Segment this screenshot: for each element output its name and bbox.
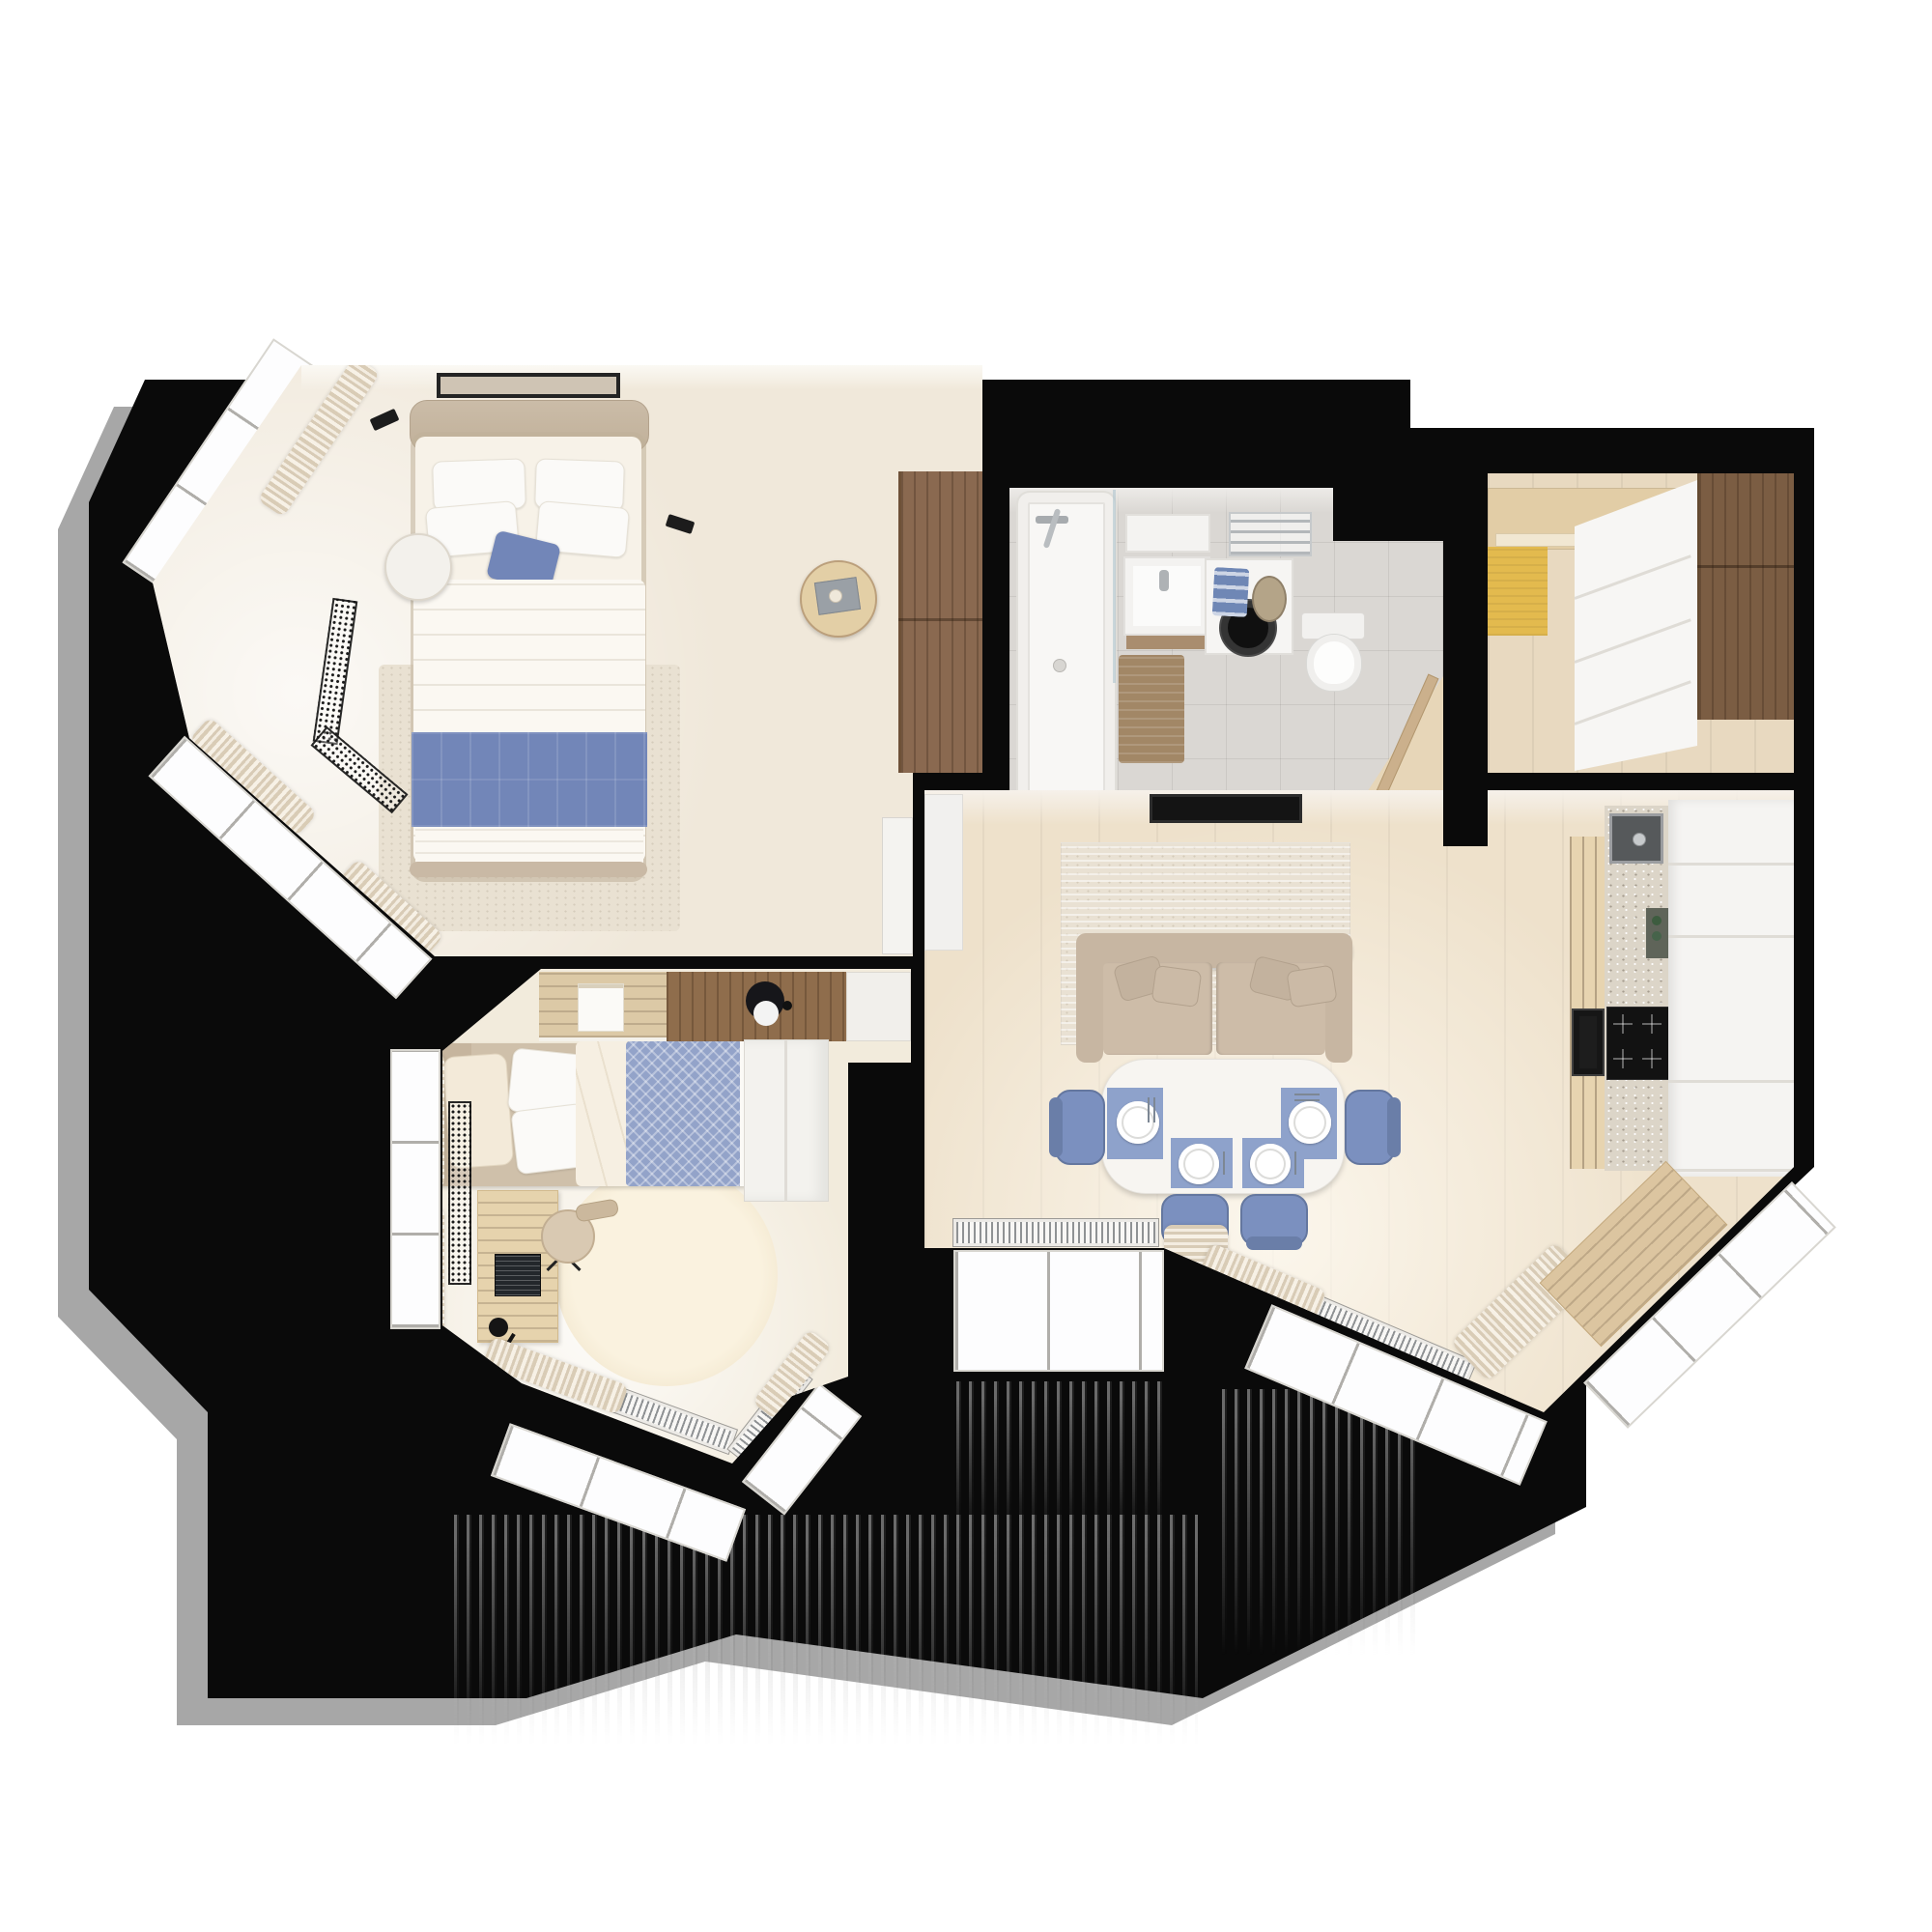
- kitchen-base-cabinets: [1570, 837, 1605, 1169]
- living-radiator-left: [953, 1219, 1158, 1246]
- plate: [1289, 1101, 1331, 1144]
- cutlery-icon: [1294, 1151, 1296, 1175]
- bedroom-wall-highlight: [301, 365, 982, 390]
- cabinet-seam: [1697, 565, 1794, 568]
- cutlery-icon: [1223, 1151, 1225, 1175]
- plate: [1250, 1144, 1291, 1184]
- burner-icon: [1640, 1012, 1663, 1036]
- curtain-reflection-stripes: [956, 1381, 1164, 1546]
- cutlery-icon: [1148, 1097, 1150, 1122]
- floor-plan-stage: [0, 0, 1932, 1932]
- curtain-reflection-stripes: [454, 1515, 1198, 1756]
- panda-plush-face-icon: [753, 1001, 779, 1026]
- bathtub-drain: [1053, 659, 1066, 672]
- vanity-sink: [1123, 556, 1210, 636]
- dining-chair-bottom-backrest: [1246, 1236, 1302, 1250]
- burner-icon: [1611, 1012, 1634, 1036]
- tv-panel: [1150, 794, 1302, 823]
- desk-lamp-icon: [489, 1318, 508, 1337]
- cabinet-seam: [1668, 935, 1794, 938]
- bedroom-door-leaf: [882, 817, 913, 954]
- nightstand-left: [384, 533, 452, 601]
- blue-towels: [1212, 567, 1250, 617]
- bed-footboard: [410, 862, 647, 877]
- yellow-doormat: [1488, 547, 1548, 636]
- towel-rail: [1229, 512, 1312, 556]
- bathroom-mirror-shelf: [1125, 514, 1210, 553]
- kids-radiator-left: [448, 1101, 471, 1285]
- burner-icon: [1640, 1047, 1663, 1070]
- kids-window-left: [390, 1049, 440, 1329]
- wardrobe-seam: [784, 1039, 787, 1202]
- dining-chair-left-backrest: [1049, 1097, 1063, 1157]
- kids-blue-blanket: [626, 1041, 752, 1186]
- vanity-drawer: [1126, 636, 1207, 649]
- living-window-left: [953, 1250, 1164, 1372]
- media-cabinet: [924, 794, 963, 951]
- cabinet-seam: [1668, 1169, 1794, 1172]
- plate: [1179, 1144, 1219, 1184]
- burner-icon: [1611, 1047, 1634, 1070]
- laptop: [495, 1254, 541, 1296]
- toilet-bowl: [1306, 634, 1362, 692]
- bed-blue-runner: [412, 732, 647, 827]
- bathtub: [1016, 491, 1117, 815]
- dining-chair-right-backrest: [1387, 1097, 1401, 1157]
- storage-basket: [1252, 576, 1287, 622]
- bed-duvet-fold: [415, 827, 643, 866]
- bottle-icon: [1652, 916, 1662, 925]
- bedroom-wardrobe-seam: [898, 618, 982, 621]
- poster: [578, 983, 624, 1032]
- kids-white-cabinet: [846, 972, 911, 1041]
- kitchen-tall-cabinets: [1668, 800, 1794, 1177]
- kitchen-faucet-icon: [1633, 833, 1646, 846]
- cabinet-seam: [1668, 863, 1794, 866]
- shower-glass-screen: [1113, 490, 1116, 683]
- cabinet-seam: [1668, 1080, 1794, 1083]
- cutlery-icon: [1153, 1097, 1155, 1122]
- bedroom-wardrobe: [898, 471, 982, 773]
- bottle-icon: [1652, 931, 1662, 941]
- built-in-oven: [1572, 1009, 1605, 1076]
- hall-tall-cabinet: [1697, 473, 1794, 720]
- candle: [829, 589, 842, 603]
- sofa-armrest-left: [1076, 933, 1103, 1063]
- sofa-pillow: [1286, 964, 1337, 1008]
- sofa-pillow: [1151, 965, 1203, 1008]
- sink-faucet-icon: [1159, 570, 1169, 591]
- bath-mat: [1119, 655, 1184, 763]
- curtain-reflection-stripes: [1222, 1389, 1420, 1669]
- cutlery-icon: [1294, 1094, 1320, 1095]
- cutlery-icon: [1294, 1099, 1320, 1101]
- bedroom-picture-frame: [437, 373, 620, 398]
